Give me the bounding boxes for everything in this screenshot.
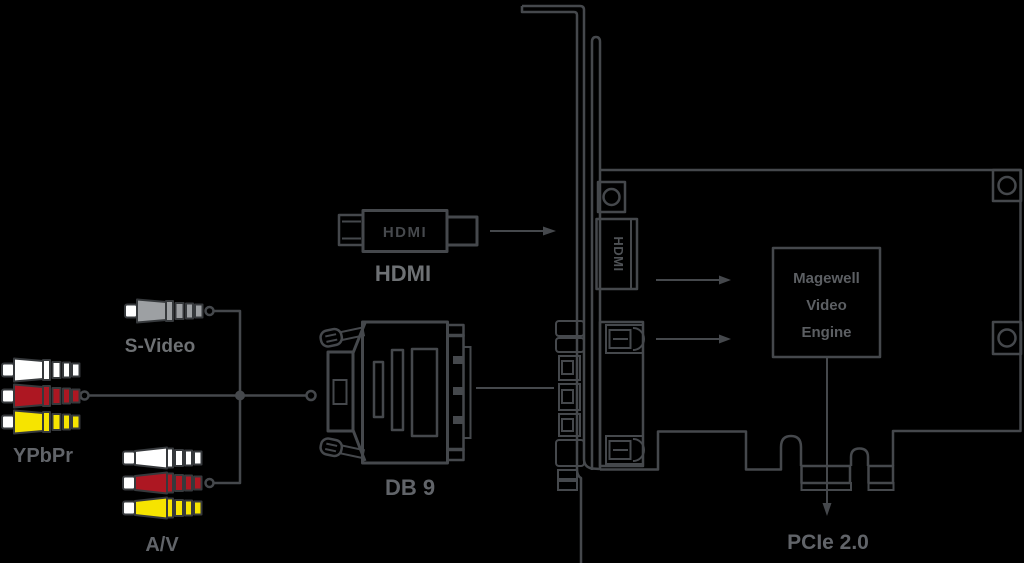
video-engine-chip: Magewell Video Engine: [773, 248, 880, 357]
hdmi-port-label: HDMI: [611, 236, 626, 271]
serration: [556, 338, 584, 352]
db9-port: [556, 321, 644, 490]
db9-pin-3: [453, 416, 463, 424]
capture-card-diagram: YPbPr S-Video A/V HDMI HDMI: [0, 0, 1024, 563]
db9-jackscrew-bottom-head-icon: [613, 439, 644, 461]
db9-slat-2: [392, 350, 403, 430]
av-red-plug-icon: [123, 473, 202, 494]
db9-slat-3: [412, 349, 437, 436]
mount-hole-top-icon: [999, 177, 1016, 194]
ypbpr-red-plug-icon: [2, 385, 80, 408]
junction-dot: [235, 391, 245, 401]
hdmi-signal-arrow-head-icon: [719, 276, 731, 285]
pcie-arrow-head-icon: [823, 503, 832, 516]
av-label: A/V: [145, 534, 179, 556]
db9-socket-serrations-icon: [556, 321, 584, 490]
db9-hood-detail: [334, 380, 347, 404]
ypbpr-yellow-plug-icon: [2, 411, 80, 434]
engine-text-line1: Magewell: [793, 270, 860, 287]
pcie-label: PCIe 2.0: [787, 531, 869, 554]
screw-head: [319, 437, 343, 457]
s-video-terminal-icon: [206, 307, 214, 315]
ypbpr-label: YPbPr: [13, 445, 73, 467]
hdmi-plug-tip: [447, 217, 477, 245]
finger-block-1: [802, 466, 851, 483]
s-video-connector: S-Video: [125, 300, 203, 358]
av-terminal-icon: [206, 479, 214, 487]
screw-head: [319, 328, 343, 348]
hdmi-connector: HDMI HDMI: [339, 211, 556, 287]
diagram-canvas: YPbPr S-Video A/V HDMI HDMI: [0, 0, 1024, 563]
s-video-label: S-Video: [125, 336, 195, 357]
serration-inner: [562, 419, 573, 431]
finger-key-notch: [851, 449, 868, 467]
serration-inner: [562, 390, 573, 403]
serration-inner: [562, 361, 573, 374]
av-white-plug-icon: [123, 448, 202, 469]
av-connectors: A/V: [123, 448, 202, 557]
pcb-outline-right: [600, 170, 1021, 466]
bracket-screw-hole-icon: [604, 189, 620, 205]
mount-hole-bottom-box: [993, 322, 1021, 354]
db9-slat-1: [374, 362, 383, 417]
hdmi-label: HDMI: [375, 261, 431, 286]
serration: [556, 440, 584, 466]
db9-pin-2: [453, 387, 463, 395]
av-yellow-plug-icon: [123, 498, 202, 519]
capture-card: HDMI: [522, 6, 1021, 563]
mount-hole-top-box: [993, 170, 1021, 201]
screw-knurl: [325, 444, 337, 452]
serration: [558, 481, 577, 490]
mount-hole-bottom-icon: [999, 330, 1016, 347]
db9-pin-1: [453, 356, 463, 364]
ypbpr-terminal-icon: [81, 392, 89, 400]
analog-sources: YPbPr S-Video A/V: [2, 300, 316, 557]
serration: [558, 470, 577, 479]
ypbpr-connectors: YPbPr: [2, 359, 80, 468]
db9-signal-arrow-head-icon: [719, 335, 731, 344]
db9-terminal-icon: [307, 391, 316, 400]
hdmi-plug-text: HDMI: [383, 224, 427, 241]
db9-jackscrew-top-head-icon: [613, 328, 644, 350]
db9-connector: DB 9: [319, 322, 554, 500]
s-video-plug-icon: [125, 300, 203, 323]
hdmi-port: HDMI: [597, 219, 638, 289]
db9-hood-front: [328, 352, 353, 431]
pcie-edge-fingers-icon: [802, 449, 894, 491]
hdmi-cable-stub-lines: [342, 222, 361, 239]
hdmi-arrow-head-icon: [543, 227, 556, 236]
hdmi-cable-stub: [339, 215, 363, 245]
screw-knurl: [325, 334, 337, 342]
bracket-screw-box: [598, 182, 625, 212]
engine-text-line2: Video: [806, 297, 847, 314]
db9-label: DB 9: [385, 475, 435, 500]
ypbpr-white-plug-icon: [2, 359, 80, 382]
serration: [556, 321, 584, 336]
finger-block-2: [869, 466, 894, 483]
engine-text-line3: Engine: [801, 324, 851, 341]
